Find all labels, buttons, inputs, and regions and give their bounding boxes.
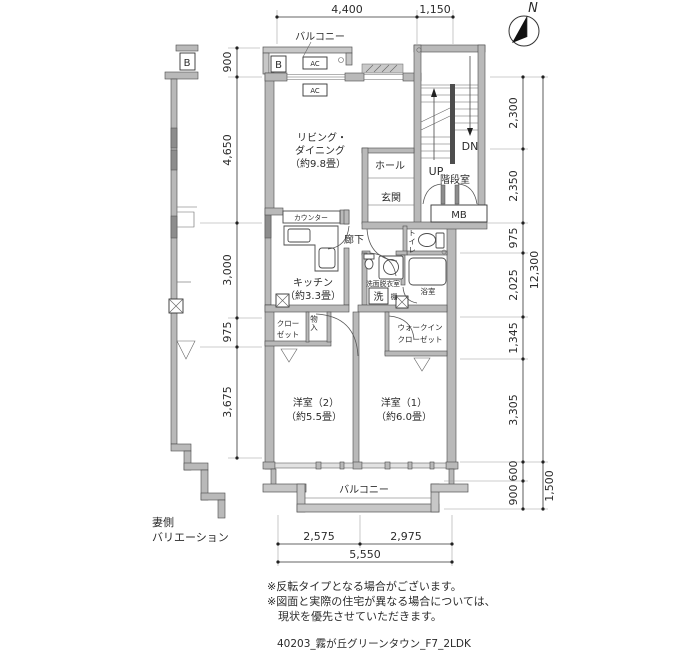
dim-bottom-2: 2,975 bbox=[390, 530, 422, 543]
dim-left-4: 975 bbox=[221, 322, 234, 343]
marker-triangle-bedroom2 bbox=[281, 349, 297, 362]
note-line2: ※図面と実際の住宅が異なる場合については、 bbox=[267, 594, 496, 608]
dim-bottom-total: 5,550 bbox=[349, 548, 381, 561]
genkan-label: 玄関 bbox=[381, 191, 401, 204]
top-balcony-label: バルコニー bbox=[295, 31, 345, 43]
stairwell-label: 階段室 bbox=[440, 173, 470, 186]
corridor-label: 廊下 bbox=[344, 233, 364, 246]
marker-triangle-bedroom1 bbox=[414, 358, 430, 371]
north-compass: N bbox=[509, 1, 539, 46]
dim-right-2: 2,350 bbox=[507, 170, 520, 202]
bedroom1-label: 洋室（1） bbox=[381, 396, 427, 409]
north-label: N bbox=[528, 1, 538, 16]
dim-left-3: 3,000 bbox=[221, 254, 234, 286]
balcony-b-label: B bbox=[275, 60, 282, 71]
wic-label-2: クローゼット bbox=[398, 334, 443, 344]
dim-bottom-1: 2,575 bbox=[303, 530, 335, 543]
dim-balcony-depth-1: 600 bbox=[507, 461, 520, 482]
ac-indoor-label: AC bbox=[310, 87, 320, 95]
dim-right-3: 975 bbox=[507, 228, 520, 249]
dim-right-total: 12,300 bbox=[528, 251, 541, 290]
stair-hall-double-door bbox=[423, 184, 477, 204]
wic-label-1: ウォークイン bbox=[398, 323, 443, 332]
bedroom1-window bbox=[362, 462, 446, 469]
dim-right-1: 2,300 bbox=[507, 97, 520, 129]
note-line1: ※反転タイプとなる場合がございます。 bbox=[267, 579, 462, 593]
bath-label: 浴室 bbox=[421, 286, 436, 296]
washroom-label: 洗面脱衣室 bbox=[366, 279, 400, 288]
shaft-x-symbol-washroom bbox=[396, 296, 408, 308]
washing-machine: 洗 bbox=[369, 288, 388, 304]
bottom-balcony: バルコニー bbox=[263, 469, 468, 512]
bedroom2-label: 洋室（2） bbox=[293, 396, 339, 409]
dim-left-1: 900 bbox=[221, 52, 234, 73]
top-balcony: B AC バルコニー bbox=[263, 31, 352, 74]
closet-label-2: ゼット bbox=[277, 329, 300, 339]
kitchen-label: キッチン bbox=[293, 277, 333, 289]
drawing-code: 40203_霧が丘グリーンタウン_F7_2LDK bbox=[277, 637, 472, 650]
dim-balcony-depth-2: 900 bbox=[507, 485, 520, 506]
staircase: UP DN MB bbox=[421, 56, 487, 222]
note-line3: 現状を優先させていただきます。 bbox=[278, 609, 442, 623]
toilet-label: トイレ bbox=[408, 229, 417, 255]
dim-right-5: 1,345 bbox=[507, 322, 520, 354]
meter-box-label: MB bbox=[451, 210, 467, 221]
entrance-porch-mat bbox=[362, 64, 403, 73]
dim-balcony-total: 1,500 bbox=[543, 470, 556, 502]
bedroom2-size-label: （約5.5畳） bbox=[286, 410, 342, 423]
living-label-1: リビング・ bbox=[297, 131, 347, 144]
floor-plan-page: B B AC バルコニー bbox=[0, 0, 700, 650]
strip-b-label: B bbox=[184, 58, 191, 69]
washer-label: 洗 bbox=[374, 291, 384, 303]
bedroom1-size-label: （約6.0畳） bbox=[376, 410, 432, 423]
shelf-label: 棚 bbox=[391, 292, 398, 301]
living-label-2: ダイニング bbox=[295, 144, 345, 157]
living-size-label: （約9.8畳） bbox=[290, 157, 346, 170]
up-arrow bbox=[431, 88, 437, 160]
down-arrow bbox=[467, 56, 473, 136]
bottom-balcony-label: バルコニー bbox=[339, 484, 389, 496]
side-label-line1: 妻側 bbox=[152, 516, 174, 529]
floor-plan-drawing: B B AC バルコニー bbox=[0, 0, 700, 650]
meter-box: MB bbox=[431, 205, 487, 222]
bathtub-fixture bbox=[409, 258, 446, 285]
bedroom2-window bbox=[275, 462, 353, 469]
dim-top-1: 4,400 bbox=[331, 3, 363, 16]
side-label-line2: バリエーション bbox=[152, 531, 229, 544]
hall-label: ホール bbox=[375, 160, 405, 172]
dim-right-6: 3,305 bbox=[507, 394, 520, 426]
dim-right-4: 2,025 bbox=[507, 269, 520, 301]
counter-label: カウンター bbox=[294, 213, 328, 222]
kitchen-size-label: （約3.3畳） bbox=[285, 289, 341, 302]
down-label: DN bbox=[462, 140, 479, 153]
dim-top-2: 1,150 bbox=[419, 3, 451, 16]
gable-side-variation-strip: B bbox=[165, 45, 225, 518]
ac-unit-label: AC bbox=[310, 60, 320, 68]
shaft-x-symbol-strip bbox=[169, 299, 183, 313]
dim-left-5: 3,675 bbox=[221, 386, 234, 418]
closet-label-1: クロー bbox=[277, 319, 300, 328]
dim-left-2: 4,650 bbox=[221, 134, 234, 166]
storage-label: 物入 bbox=[309, 314, 318, 332]
